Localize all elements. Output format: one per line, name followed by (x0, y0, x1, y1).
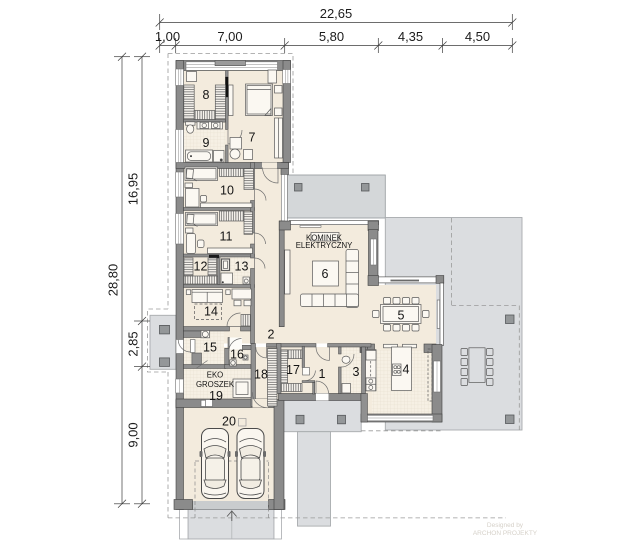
svg-text:4: 4 (403, 363, 410, 377)
svg-text:22,65: 22,65 (320, 6, 353, 21)
svg-text:18: 18 (254, 368, 268, 382)
svg-text:ELEKTRYCZNY: ELEKTRYCZNY (296, 241, 353, 250)
svg-text:14: 14 (204, 305, 218, 319)
svg-text:15: 15 (203, 341, 217, 355)
svg-text:20: 20 (222, 415, 236, 429)
svg-text:8: 8 (203, 88, 210, 102)
svg-text:6: 6 (322, 267, 329, 281)
svg-text:28,80: 28,80 (106, 264, 121, 297)
svg-text:2,85: 2,85 (126, 331, 141, 356)
svg-text:EKO: EKO (207, 371, 223, 380)
svg-text:11: 11 (220, 230, 233, 244)
svg-text:7: 7 (249, 131, 256, 145)
svg-text:9: 9 (203, 136, 210, 150)
svg-text:4,35: 4,35 (398, 29, 423, 44)
svg-text:19: 19 (209, 389, 223, 403)
svg-text:7,00: 7,00 (217, 29, 242, 44)
svg-text:4,50: 4,50 (465, 29, 490, 44)
svg-text:16,95: 16,95 (126, 173, 141, 206)
svg-text:3: 3 (353, 365, 360, 379)
svg-text:GROSZEK: GROSZEK (196, 380, 235, 389)
svg-text:16: 16 (230, 348, 244, 362)
svg-text:5,80: 5,80 (319, 29, 344, 44)
svg-text:10: 10 (220, 184, 234, 198)
svg-text:1: 1 (319, 367, 326, 381)
svg-text:ARCHON PROJEKTY: ARCHON PROJEKTY (473, 530, 538, 537)
svg-text:Designed by: Designed by (487, 522, 524, 529)
svg-text:17: 17 (286, 363, 300, 377)
svg-text:9,00: 9,00 (126, 422, 141, 447)
svg-text:12: 12 (194, 260, 208, 274)
svg-text:5: 5 (398, 309, 405, 323)
svg-text:1,00: 1,00 (155, 29, 180, 44)
svg-text:2: 2 (268, 328, 275, 342)
svg-text:13: 13 (235, 260, 249, 274)
